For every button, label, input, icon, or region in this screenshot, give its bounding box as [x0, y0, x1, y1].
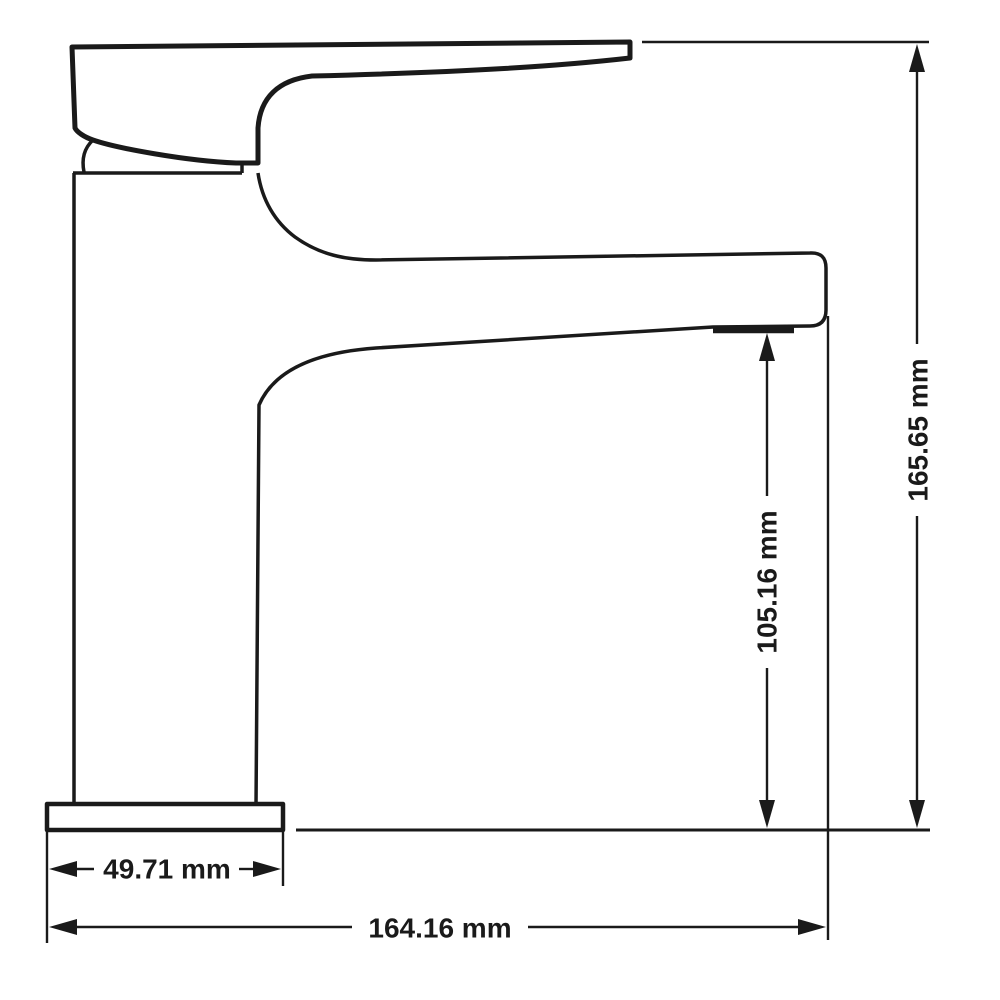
faucet-outline — [47, 42, 826, 830]
dimension-label-total-width: 164.16 mm — [368, 913, 511, 944]
base-plate — [47, 804, 283, 830]
arrowhead-left — [49, 861, 77, 877]
dimension-total-width: 164.16 mm — [49, 913, 826, 944]
dimension-spout-height: 105.16 mm — [752, 333, 783, 828]
faucet-technical-drawing: 165.65 mm 105.16 mm 49.71 mm 164.16 mm — [0, 0, 1000, 1000]
arrowhead-down — [909, 800, 925, 828]
dimension-label-spout-height: 105.16 mm — [752, 510, 783, 653]
arrowhead-right — [798, 919, 826, 935]
arrowhead-right — [253, 861, 281, 877]
cartridge-arc — [83, 140, 93, 172]
arrowhead-down — [759, 800, 775, 828]
dimension-base-width: 49.71 mm — [49, 854, 281, 885]
dimension-label-total-height: 165.65 mm — [903, 358, 934, 501]
dimension-label-base-width: 49.71 mm — [103, 854, 231, 885]
handle-lever-outline — [72, 42, 630, 163]
arrowhead-left — [49, 919, 77, 935]
dimension-total-height: 165.65 mm — [903, 44, 934, 828]
body-spout-outline — [256, 173, 826, 806]
faucet-dimension-drawing-page: 165.65 mm 105.16 mm 49.71 mm 164.16 mm — [0, 0, 1000, 1000]
